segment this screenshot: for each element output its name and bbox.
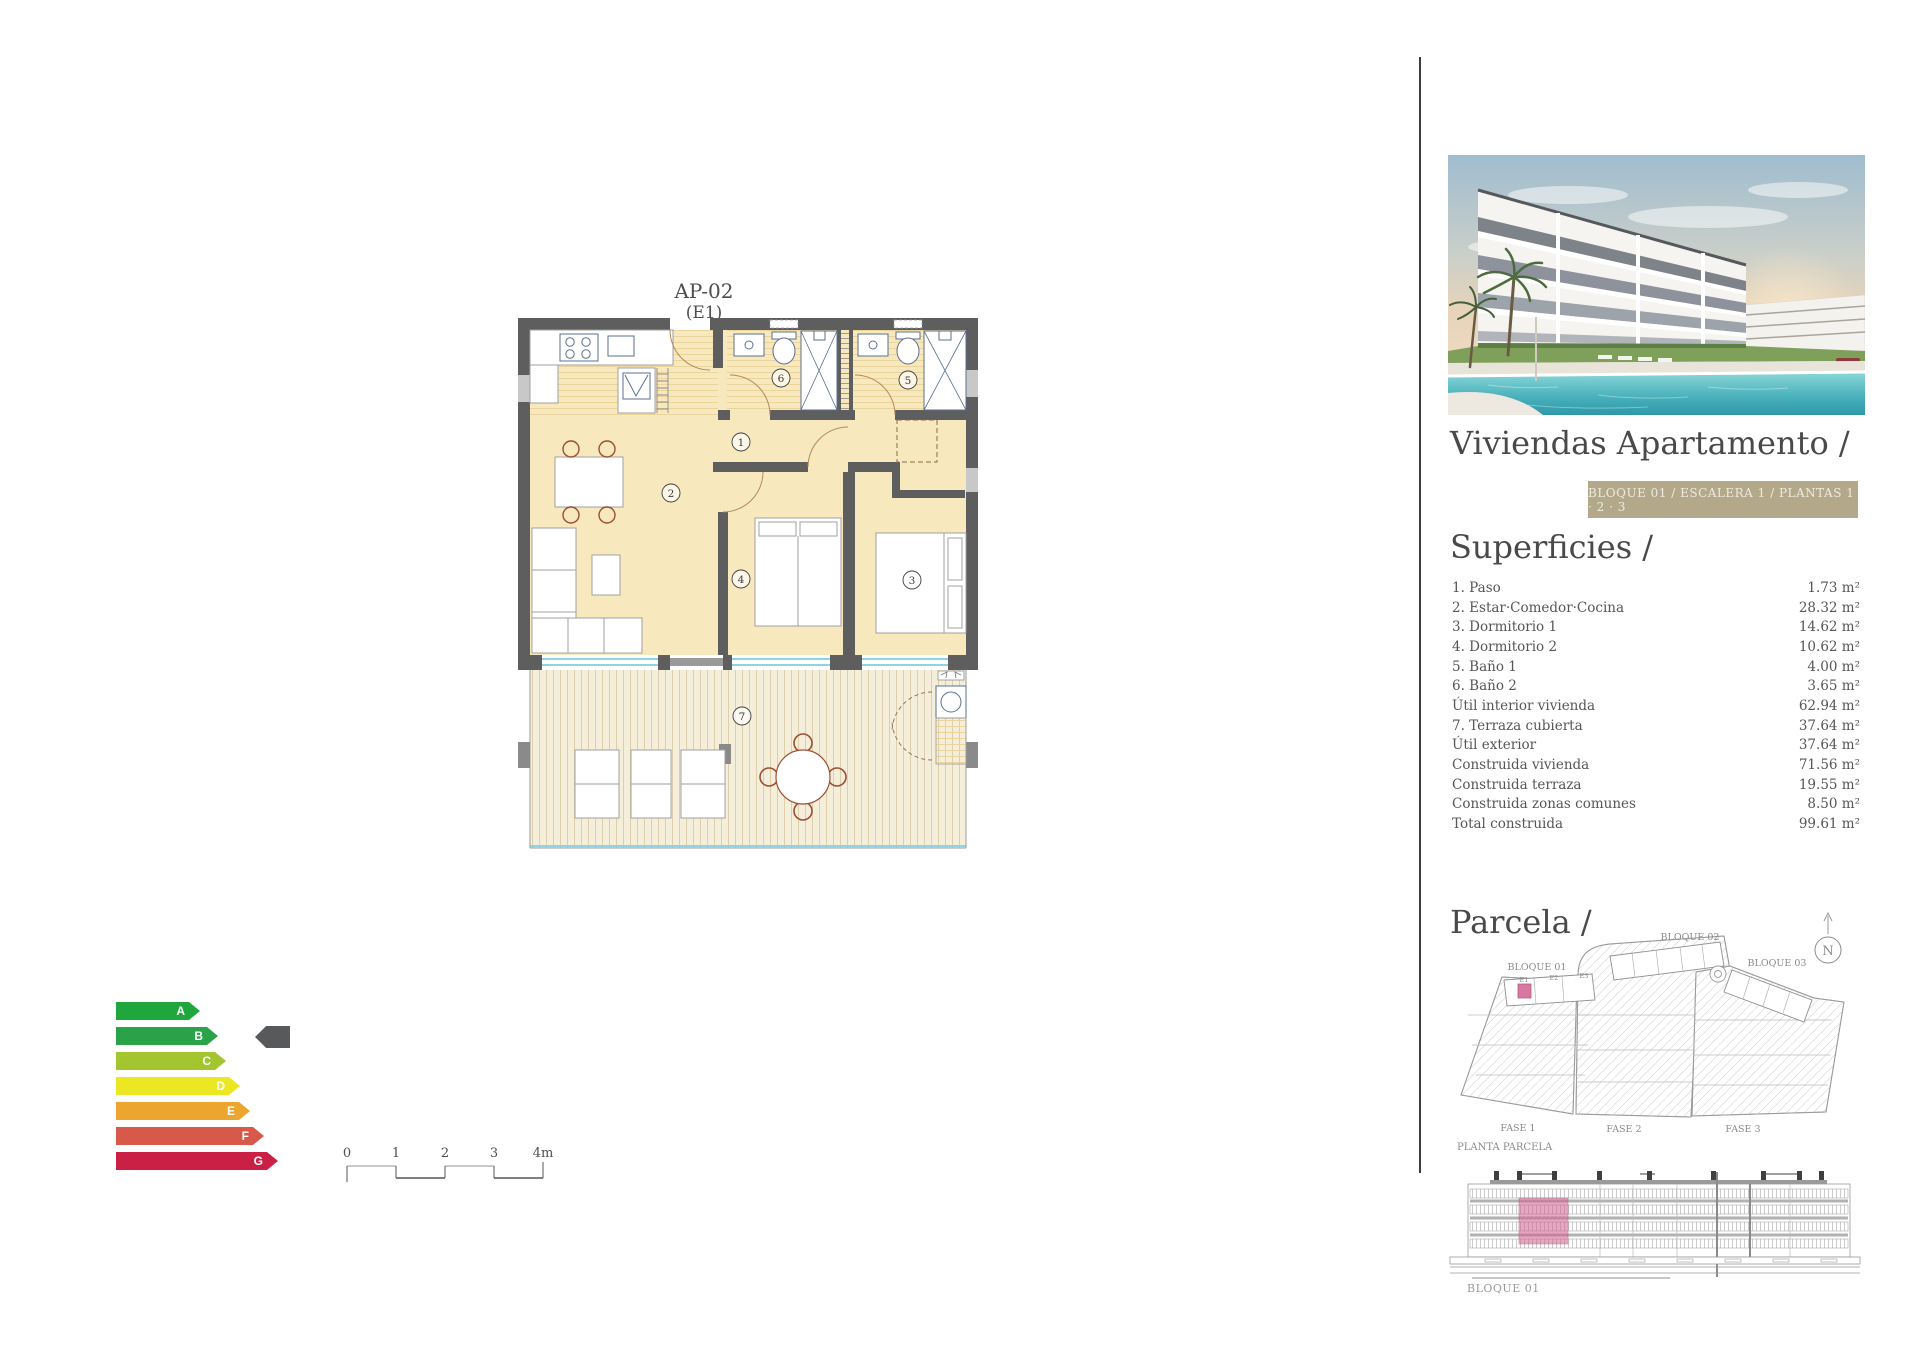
row-label: Construida zonas comunes: [1452, 796, 1636, 812]
row-label: 5. Baño 1: [1452, 659, 1517, 675]
scale-label-0: 0: [343, 1146, 351, 1161]
row-label: Construida vivienda: [1452, 757, 1589, 773]
table-row: Útil interior vivienda62.94 m²: [1452, 696, 1860, 716]
row-value: 1.73 m²: [1807, 580, 1860, 596]
sliding-door: [670, 658, 723, 666]
row-value: 71.56 m²: [1799, 757, 1860, 773]
table-row: 4. Dormitorio 210.62 m²: [1452, 637, 1860, 657]
plan-title: AP-02 (E1): [518, 279, 890, 323]
scale-label-3: 3: [490, 1146, 498, 1161]
shaft: [841, 330, 849, 410]
site-label-e1: E1: [1520, 976, 1529, 984]
scale-bar: 0 1 2 3 4m: [342, 1142, 557, 1192]
photo-far-building: [1744, 295, 1865, 351]
energy-letter-e: E: [227, 1104, 235, 1118]
block-badge: BLOQUE 01 / ESCALERA 1 / PLANTAS 1 · 2 ·…: [1588, 481, 1858, 518]
row-label: Útil exterior: [1452, 737, 1536, 753]
superficies-table: 1. Paso1.73 m² 2. Estar·Comedor·Cocina28…: [1452, 578, 1860, 834]
row-value: 62.94 m²: [1799, 698, 1860, 714]
room-number-terraza: 7: [739, 711, 746, 723]
energy-bar-d: D: [116, 1077, 240, 1095]
energy-bar-b: B: [116, 1027, 218, 1045]
site-label-fase1: FASE 1: [1500, 1123, 1535, 1134]
table-row: 6. Baño 23.65 m²: [1452, 676, 1860, 696]
elevation-base: [1450, 1257, 1860, 1278]
brochure-page: AP-02 (E1): [0, 0, 1920, 1357]
table-row: Total construida99.61 m²: [1452, 814, 1860, 834]
row-label: 7. Terraza cubierta: [1452, 718, 1583, 734]
row-value: 37.64 m²: [1799, 737, 1860, 753]
room-number-estar: 2: [668, 488, 675, 500]
table-row: Construida terraza19.55 m²: [1452, 775, 1860, 795]
row-value: 3.65 m²: [1807, 678, 1860, 694]
scale-ticks: [347, 1162, 543, 1182]
row-value: 14.62 m²: [1799, 619, 1860, 635]
energy-letter-f: F: [242, 1129, 249, 1143]
superficies-heading: Superficies /: [1450, 528, 1653, 566]
table-row: 2. Estar·Comedor·Cocina28.32 m²: [1452, 598, 1860, 618]
energy-rating-chart: A B C D E F G: [116, 1002, 326, 1182]
plan-code: AP-02: [518, 279, 890, 303]
bed-dormitorio2: [755, 518, 841, 626]
table-row: 5. Baño 14.00 m²: [1452, 657, 1860, 677]
site-label-fase2: FASE 2: [1606, 1124, 1641, 1135]
room-number-bano2: 6: [778, 373, 785, 385]
row-label: 3. Dormitorio 1: [1452, 619, 1557, 635]
energy-letter-a: A: [176, 1004, 185, 1018]
table-row: Útil exterior37.64 m²: [1452, 736, 1860, 756]
terrace-pier-right: [966, 742, 978, 768]
row-value: 8.50 m²: [1807, 796, 1860, 812]
kitchen-sink-icon: [623, 373, 650, 399]
energy-letter-d: D: [216, 1079, 225, 1093]
building-elevation: BLOQUE 01: [1440, 1160, 1920, 1310]
energy-rating-marker-icon: [255, 1026, 290, 1048]
row-value: 37.64 m²: [1799, 718, 1860, 734]
site-caption: PLANTA PARCELA: [1457, 1142, 1553, 1153]
scale-label-4: 4m: [533, 1146, 554, 1161]
table-row: Construida zonas comunes8.50 m²: [1452, 795, 1860, 815]
energy-letter-g: G: [254, 1154, 263, 1168]
energy-letter-c: C: [202, 1054, 211, 1068]
floor-plan: 1 2 3 4 5 6 7: [518, 318, 978, 858]
energy-bar-e: E: [116, 1102, 250, 1120]
highlighted-apartment: [1519, 1198, 1568, 1244]
vertical-divider: [1419, 57, 1421, 1173]
highlighted-unit: [1518, 984, 1531, 998]
site-label-bloque02: BLOQUE 02: [1661, 932, 1720, 943]
site-label-bloque03: BLOQUE 03: [1748, 958, 1807, 969]
elevation-roof: [1490, 1180, 1827, 1184]
terrace-wall: [530, 655, 966, 670]
table-row: 3. Dormitorio 114.62 m²: [1452, 617, 1860, 637]
energy-bar-g: G: [116, 1152, 278, 1170]
room-number-bano1: 5: [905, 375, 912, 387]
site-label-fase3: FASE 3: [1725, 1124, 1760, 1135]
row-label: 4. Dormitorio 2: [1452, 639, 1557, 655]
photo-lawn: [1448, 346, 1865, 363]
row-value: 10.62 m²: [1799, 639, 1860, 655]
room-number-dorm1: 3: [909, 575, 916, 587]
energy-bar-c: C: [116, 1052, 226, 1070]
terrace-pier-left: [518, 742, 530, 768]
site-plan: BLOQUE 01 BLOQUE 02 BLOQUE 03 FASE 1 FAS…: [1440, 910, 1920, 1160]
north-label: N: [1822, 944, 1833, 959]
scale-label-1: 1: [392, 1146, 400, 1161]
row-label: 6. Baño 2: [1452, 678, 1517, 694]
row-label: Útil interior vivienda: [1452, 698, 1595, 714]
hero-photo: [1448, 155, 1865, 415]
room-number-paso: 1: [738, 437, 745, 449]
elevation-label: BLOQUE 01: [1467, 1282, 1540, 1295]
table-row: 1. Paso1.73 m²: [1452, 578, 1860, 598]
energy-bar-a: A: [116, 1002, 200, 1020]
bed-dormitorio1: [876, 533, 966, 633]
scale-label-2: 2: [441, 1146, 449, 1161]
row-label: Total construida: [1452, 816, 1563, 832]
table-row: Construida vivienda71.56 m²: [1452, 755, 1860, 775]
row-label: Construida terraza: [1452, 777, 1581, 793]
north-compass-icon: N: [1815, 913, 1841, 963]
site-label-e2: E2: [1550, 974, 1559, 982]
sun-loungers: [575, 750, 725, 818]
row-label: 1. Paso: [1452, 580, 1501, 596]
elevation-chimneys: [1494, 1171, 1824, 1180]
site-roundabout: [1710, 966, 1726, 982]
room-number-dorm2: 4: [738, 574, 745, 586]
page-title: Viviendas Apartamento /: [1450, 424, 1850, 462]
energy-letter-b: B: [194, 1029, 203, 1043]
site-label-bloque01: BLOQUE 01: [1508, 962, 1567, 973]
row-value: 19.55 m²: [1799, 777, 1860, 793]
row-value: 4.00 m²: [1807, 659, 1860, 675]
row-value: 28.32 m²: [1799, 600, 1860, 616]
site-label-e3: E3: [1580, 972, 1589, 980]
table-row: 7. Terraza cubierta37.64 m²: [1452, 716, 1860, 736]
row-label: 2. Estar·Comedor·Cocina: [1452, 600, 1624, 616]
row-value: 99.61 m²: [1799, 816, 1860, 832]
energy-bar-f: F: [116, 1127, 264, 1145]
